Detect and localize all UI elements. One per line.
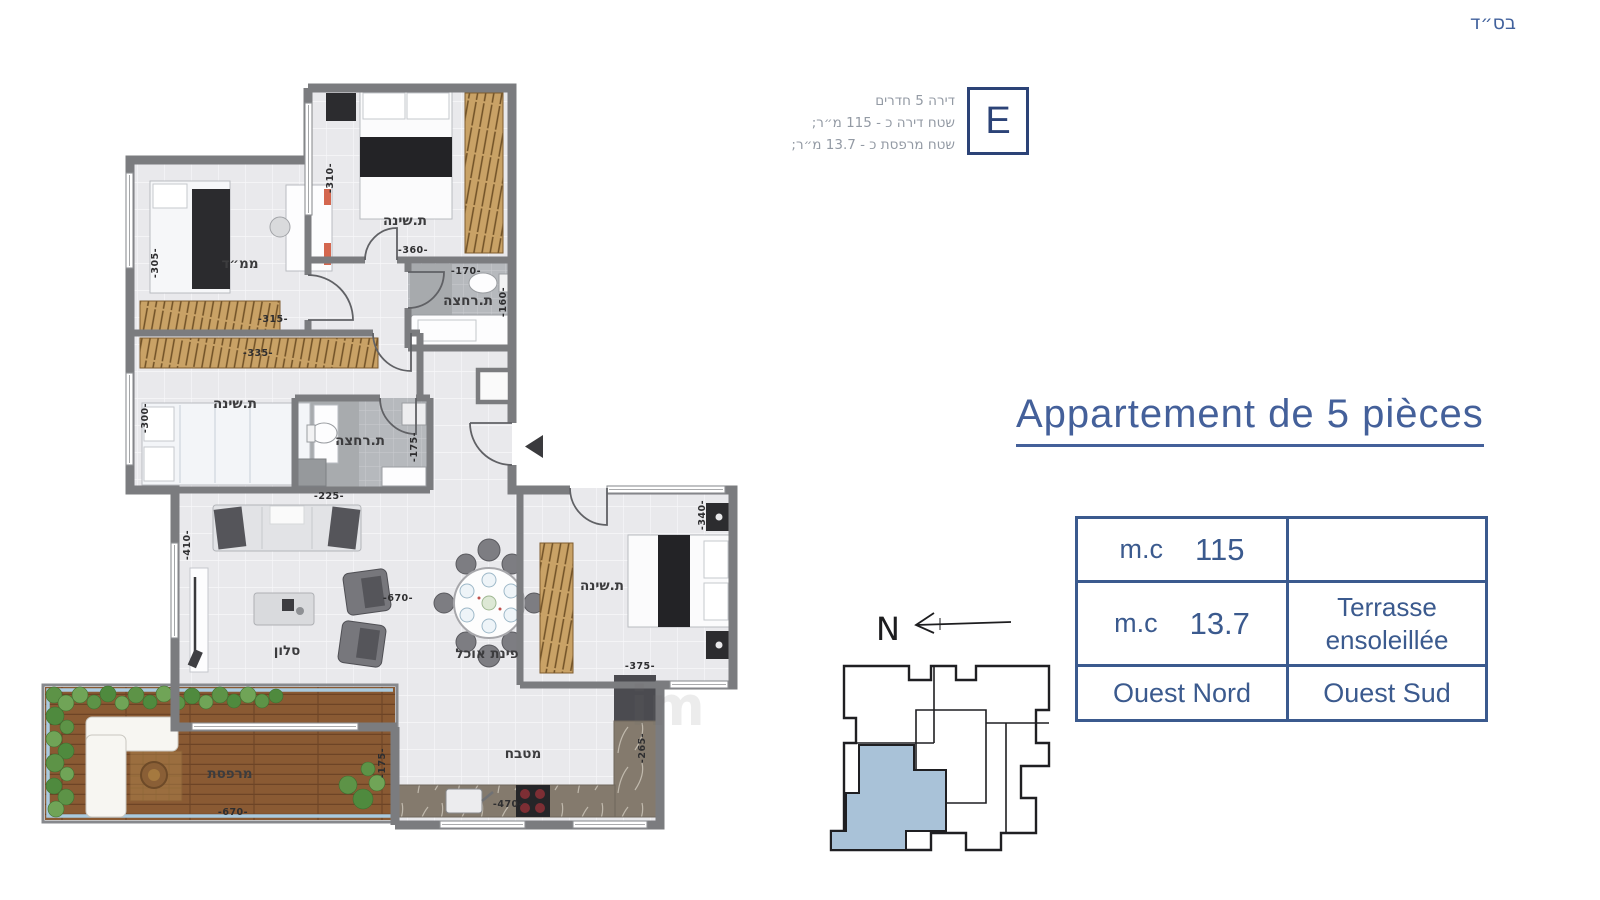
table-cell-orientation-2: Ouest Sud xyxy=(1286,664,1485,719)
room-label-kitchen: מטבח xyxy=(505,746,541,762)
dim-label: -360- xyxy=(398,245,428,256)
bsd-text: בס״ד xyxy=(1448,12,1538,34)
chair-mamad xyxy=(270,217,290,237)
dim-label: -410- xyxy=(182,530,193,560)
washer xyxy=(402,403,426,425)
dim-label: -175- xyxy=(409,432,420,462)
room-label-bath-mid: ת.רחצה xyxy=(335,433,385,449)
terrace-table-center xyxy=(148,769,160,781)
nightstand-lamp xyxy=(716,514,723,521)
dim-label: -340- xyxy=(697,500,708,530)
unit-label: m.c xyxy=(1114,608,1158,639)
unit-label: m.c xyxy=(1120,534,1164,565)
room-label-terrace: מרפסת xyxy=(207,766,252,782)
north-label: N xyxy=(876,610,900,648)
dim-label: -310- xyxy=(325,163,336,193)
vanity-bath-mid xyxy=(382,467,426,486)
title-wrap: Appartement de 5 pièces xyxy=(1016,392,1536,447)
coffee-table-deco2 xyxy=(296,607,304,615)
terrace-area-value: 13.7 xyxy=(1190,606,1250,642)
armchair-cushion xyxy=(361,576,385,608)
dim-label: -470- xyxy=(493,799,523,810)
room-label-salon: סלון xyxy=(274,643,301,659)
pillow xyxy=(704,583,728,620)
floorplan-page: בס״ד דירה 5 חדרים שטח דירה כ - 115 מ״ר; … xyxy=(0,0,1600,900)
room-label-dining: פינת אוכל xyxy=(455,646,518,662)
watermark: im xyxy=(630,675,705,738)
room-label-mamad: ממ״ד xyxy=(221,256,258,272)
sofa-pillow-light xyxy=(270,506,304,524)
unit-letter: E xyxy=(985,100,1010,143)
dim-label: -670- xyxy=(383,593,413,604)
pillow xyxy=(704,541,728,578)
shower-tray xyxy=(298,459,326,486)
entrance-arrow xyxy=(525,435,543,458)
burner xyxy=(535,803,545,813)
bed-top-blanket xyxy=(360,137,452,177)
summary-table: m.c 115 m.c 13.7 Terrasse ensoleillée Ou… xyxy=(1075,516,1488,722)
apartment-area-value: 115 xyxy=(1195,532,1244,568)
shaft xyxy=(478,370,510,402)
sofa-pillow-dark xyxy=(214,506,247,549)
bed-mamad-blanket xyxy=(192,189,230,289)
dim-label: -315- xyxy=(258,314,288,325)
dresser-dark xyxy=(326,93,356,121)
wardrobe-bedroom-right xyxy=(540,543,573,673)
room-label-bedroom-right: ת.שינה xyxy=(580,578,624,594)
coffee-table-deco xyxy=(282,599,294,611)
table-cell-orientation-1: Ouest Nord xyxy=(1078,664,1286,719)
dim-label: -175- xyxy=(377,748,388,778)
table-cell-empty xyxy=(1286,519,1485,580)
nightstand-lamp xyxy=(716,642,723,649)
dim-label: -265- xyxy=(637,733,648,763)
room-label-bath-top: ת.רחצה xyxy=(443,293,493,309)
terrace xyxy=(43,685,397,822)
dim-label: -170- xyxy=(451,266,481,277)
table-cell-area-terrace: m.c 13.7 xyxy=(1078,580,1286,664)
armchair-cushion xyxy=(356,628,380,660)
dim-label: -335- xyxy=(243,348,273,359)
wardrobe-top-bedroom xyxy=(465,93,503,253)
floor-plan: im ת.שינה ממ״ד ת.רחצה ת.שינה ת.רחצה סלון… xyxy=(30,75,750,885)
north-arrow-line xyxy=(916,622,1011,625)
dim-label: -225- xyxy=(314,491,344,502)
kitchen-sink xyxy=(446,789,482,813)
table-cell-terrace-label: Terrasse ensoleillée xyxy=(1286,580,1485,664)
north-arrow-head xyxy=(916,613,934,633)
room-label-bedroom-top: ת.שינה xyxy=(383,213,427,229)
pillow xyxy=(144,447,174,481)
pillow xyxy=(153,184,187,208)
room-label-bedroom-mid: ת.שינה xyxy=(213,396,257,412)
burner xyxy=(520,789,530,799)
dim-label: -300- xyxy=(140,403,151,433)
burner xyxy=(535,789,545,799)
pillow xyxy=(407,93,449,119)
sofa-pillow-dark xyxy=(328,506,361,549)
table-cell-area-apartment: m.c 115 xyxy=(1078,519,1286,580)
toilet-tank xyxy=(307,425,315,442)
dim-label: -670- xyxy=(218,807,248,818)
dim-label: -305- xyxy=(150,248,161,278)
pillow xyxy=(363,93,405,119)
bed-right-blanket xyxy=(658,535,690,627)
north-arrow: N xyxy=(866,602,1016,650)
unit-letter-box: E xyxy=(967,87,1029,155)
terrace-sofa-side xyxy=(86,735,126,817)
page-title: Appartement de 5 pièces xyxy=(1016,392,1484,447)
dim-label: -160- xyxy=(498,287,509,317)
dim-label: -375- xyxy=(625,661,655,672)
key-plan xyxy=(820,648,1058,856)
